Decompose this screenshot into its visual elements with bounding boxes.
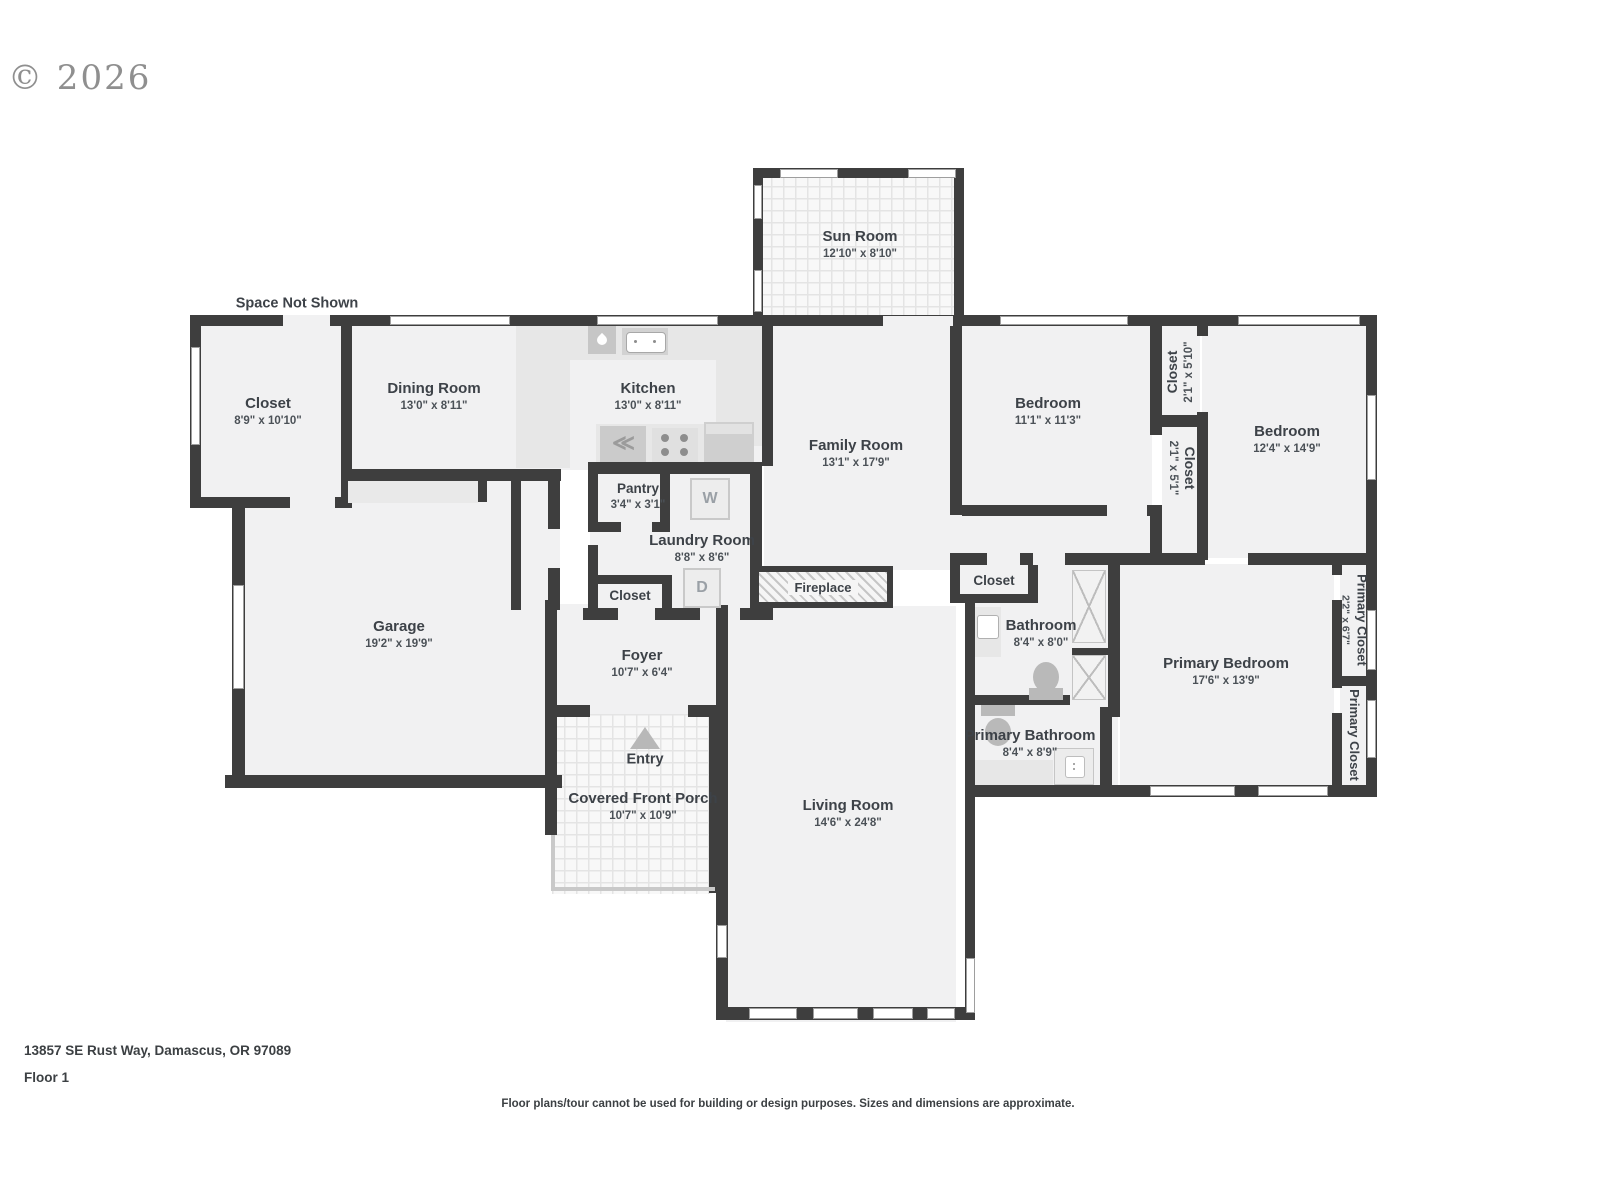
room-name: Garage <box>365 618 433 636</box>
porch-edge <box>551 835 555 891</box>
room-label-primary-bedroom: Primary Bedroom 17'6" x 13'9" <box>1163 655 1289 689</box>
window <box>717 925 727 958</box>
room-name: Laundry Room <box>649 532 755 550</box>
room-dims: 17'6" x 13'9" <box>1163 675 1289 689</box>
room-name: Living Room <box>803 797 894 815</box>
door-opening <box>883 316 953 326</box>
room-label-porch: Covered Front Porch 10'7" x 10'9" <box>568 790 717 824</box>
kitchen-sink-icon <box>622 328 668 355</box>
room-dims: 12'10" x 8'10" <box>823 248 898 262</box>
room-dims: 19'2" x 19'9" <box>365 638 433 652</box>
wall-segment <box>950 553 987 565</box>
wall-segment <box>954 168 964 325</box>
room-label-foyer: Foyer 10'7" x 6'4" <box>611 647 672 681</box>
wall-segment <box>1028 565 1038 603</box>
wall-segment <box>740 608 773 620</box>
stove-icon <box>652 428 698 462</box>
wall-segment <box>548 568 560 610</box>
room-name: Primary Bedroom <box>1163 655 1289 673</box>
room-name: Kitchen <box>615 380 682 398</box>
entry-arrow-icon <box>630 727 660 749</box>
wall-segment <box>1197 412 1208 560</box>
wall-segment <box>190 315 1377 326</box>
room-name: Primary Closet <box>1346 680 1362 790</box>
room-label-kitchen: Kitchen 13'0" x 8'11" <box>615 380 682 414</box>
window <box>1258 786 1328 796</box>
dryer-icon: D <box>683 568 721 608</box>
room-dims: 8'4" x 8'0" <box>1006 637 1077 651</box>
room-label-pantry: Pantry 3'4" x 3'1" <box>611 481 666 513</box>
window <box>1367 700 1376 758</box>
wall-segment <box>588 462 762 474</box>
porch-edge <box>551 887 715 891</box>
room-label-closet-bed-top: Closet 2'1" x 5'10" <box>1164 322 1198 422</box>
wall-segment <box>1072 648 1108 655</box>
room-name: Dining Room <box>387 380 480 398</box>
room-name: Closet <box>234 395 302 413</box>
room-dims: 13'0" x 8'11" <box>615 400 682 414</box>
room-dims: 2'1" x 5'10" <box>1183 322 1197 422</box>
room-dims: 13'1" x 17'9" <box>809 457 903 471</box>
room-label-closet-left: Closet 8'9" x 10'10" <box>234 395 302 429</box>
kitchen-counter-left <box>516 326 570 468</box>
room-name: Closet <box>973 573 1014 589</box>
room-label-garage: Garage 19'2" x 19'9" <box>365 618 433 652</box>
washer-icon: W <box>690 478 730 520</box>
room-label-family: Family Room 13'1" x 17'9" <box>809 437 903 471</box>
wall-segment <box>762 326 773 466</box>
room-label-hall-closet: Closet <box>973 573 1014 589</box>
room-dims: 10'7" x 10'9" <box>568 810 717 824</box>
window <box>908 169 956 178</box>
room-label-primary-bathroom: Primary Bathroom 8'4" x 8'9" <box>965 727 1096 761</box>
wall-segment <box>477 481 487 502</box>
wall-segment <box>652 522 670 532</box>
room-label-primary-closet-1: Primary Closet 2'2" x 6'7" <box>1340 568 1370 673</box>
room-dims: 8'8" x 8'6" <box>649 552 755 566</box>
window <box>813 1008 858 1019</box>
room-dims: 8'4" x 8'9" <box>965 747 1096 761</box>
wall-segment <box>950 594 1038 603</box>
wall-segment <box>965 600 975 1019</box>
fireplace-label: Fireplace <box>788 580 857 595</box>
wall-segment <box>341 469 561 481</box>
window <box>1000 316 1128 325</box>
room-label-bedroom1: Bedroom 11'1" x 11'3" <box>1015 395 1081 429</box>
room-dims: 2'2" x 6'7" <box>1339 568 1352 673</box>
room-dims: 2'1" x 5'1" <box>1165 423 1179 513</box>
room-name: Closet <box>1164 322 1181 422</box>
primary-bath-counter <box>975 760 1053 785</box>
wall-segment <box>545 705 557 835</box>
room-name: Foyer <box>611 647 672 665</box>
wall-segment <box>588 545 598 620</box>
window <box>597 316 718 325</box>
wall-segment <box>962 505 1107 516</box>
wall-segment <box>1108 553 1120 715</box>
room-name: Pantry <box>611 481 666 497</box>
disclaimer-text: Floor plans/tour cannot be used for buil… <box>501 1098 1074 1110</box>
bifold-closet-icon <box>1072 570 1106 643</box>
floor-plan-page: © 2026 ≪ <box>0 0 1600 1200</box>
wall-segment <box>1160 553 1205 565</box>
room-dims: 10'7" x 6'4" <box>611 667 672 681</box>
room-name: Covered Front Porch <box>568 790 717 808</box>
window <box>966 958 975 1013</box>
room-dims: 13'0" x 8'11" <box>387 400 480 414</box>
copyright-watermark: © 2026 <box>8 58 151 98</box>
range-glyph: ≪ <box>612 430 635 456</box>
room-name: Bedroom <box>1015 395 1081 413</box>
window <box>873 1008 913 1019</box>
wall-segment <box>1100 707 1112 797</box>
bath-sink-icon <box>977 615 999 639</box>
room-name: Closet <box>609 588 650 604</box>
fireplace: Fireplace <box>753 566 893 608</box>
window <box>927 1008 955 1019</box>
entry-label: Entry <box>626 751 663 768</box>
room-name: Sun Room <box>823 228 898 246</box>
room-label-laundry: Laundry Room 8'8" x 8'6" <box>649 532 755 566</box>
room-dims: 11'1" x 11'3" <box>1015 415 1081 429</box>
wall-segment <box>588 522 621 532</box>
wall-segment <box>511 469 521 610</box>
annotation-text: Entry <box>626 751 663 768</box>
wall-segment <box>950 315 962 515</box>
sink-basin <box>626 332 666 353</box>
wall-segment <box>716 717 728 1019</box>
wall-segment <box>1197 326 1208 336</box>
room-name: Primary Closet <box>1354 568 1370 673</box>
room-name: Closet <box>1181 423 1198 513</box>
wall-segment <box>225 775 562 788</box>
room-dims: 14'6" x 24'8" <box>803 817 894 831</box>
room-label-dining: Dining Room 13'0" x 8'11" <box>387 380 480 414</box>
room-dims: 12'4" x 14'9" <box>1253 443 1321 457</box>
wall-segment <box>1020 553 1033 565</box>
wall-segment <box>598 575 662 584</box>
wall-segment <box>1248 553 1377 565</box>
space-not-shown-label: Space Not Shown <box>236 295 358 312</box>
wall-segment <box>662 575 672 620</box>
room-label-primary-closet-2: Primary Closet <box>1346 680 1362 790</box>
room-dims: 3'4" x 3'1" <box>611 499 666 513</box>
room-label-living: Living Room 14'6" x 24'8" <box>803 797 894 831</box>
water-drop-icon <box>595 333 609 347</box>
door-opening <box>283 315 330 326</box>
wall-segment <box>1150 315 1162 435</box>
room-label-sun-room: Sun Room 12'10" x 8'10" <box>823 228 898 262</box>
bifold-closet-icon <box>1072 655 1106 700</box>
toilet-tank <box>1029 688 1063 700</box>
toilet-tank <box>981 705 1015 716</box>
room-name: Bedroom <box>1253 423 1321 441</box>
room-label-closet-bed-bot: Closet 2'1" x 5'1" <box>1164 423 1198 513</box>
dishwasher-icon <box>588 326 616 354</box>
range-icon: ≪ <box>600 426 646 462</box>
floor-number-text: Floor 1 <box>24 1070 69 1085</box>
window <box>754 270 762 312</box>
wall-segment <box>716 605 728 717</box>
window <box>1367 395 1376 480</box>
address-text: 13857 SE Rust Way, Damascus, OR 97089 <box>24 1043 291 1058</box>
room-label-laundry-closet: Closet <box>609 588 650 604</box>
door-opening <box>290 497 335 508</box>
window <box>1150 786 1235 796</box>
room-name: Bathroom <box>1006 617 1077 635</box>
window <box>390 316 510 325</box>
fridge-top <box>706 424 752 434</box>
wall-segment <box>545 600 557 717</box>
room-name: Primary Bathroom <box>965 727 1096 745</box>
fridge-icon <box>704 422 754 464</box>
wall-segment <box>548 469 560 529</box>
room-label-bathroom: Bathroom 8'4" x 8'0" <box>1006 617 1077 651</box>
window <box>233 585 244 689</box>
annotation-text: Space Not Shown <box>236 295 358 312</box>
garage-apron <box>348 481 478 503</box>
window <box>780 169 838 178</box>
window <box>1238 316 1360 325</box>
room-name: Family Room <box>809 437 903 455</box>
room-label-bedroom2: Bedroom 12'4" x 14'9" <box>1253 423 1321 457</box>
window <box>754 185 762 219</box>
room-dims: 8'9" x 10'10" <box>234 415 302 429</box>
window <box>191 347 200 445</box>
window <box>749 1008 797 1019</box>
